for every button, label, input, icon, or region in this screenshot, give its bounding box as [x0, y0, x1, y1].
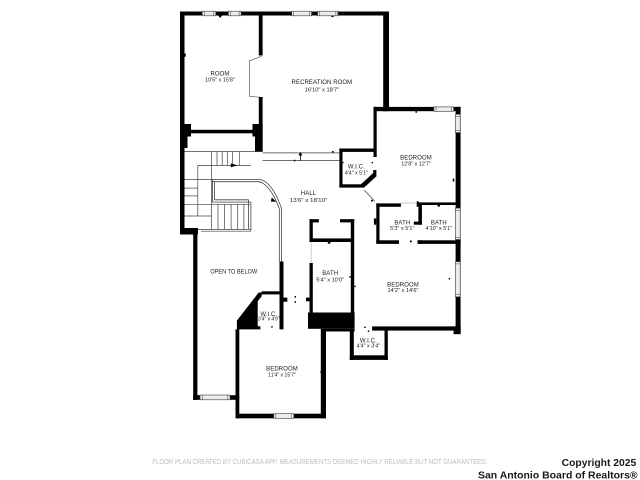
svg-text:OPEN TO BELOW: OPEN TO BELOW [210, 270, 257, 276]
svg-text:16'10" x 18'7": 16'10" x 18'7" [305, 87, 340, 93]
svg-text:4'10" x 5'1": 4'10" x 5'1" [426, 226, 453, 232]
svg-text:10'5" x 15'8": 10'5" x 15'8" [205, 78, 235, 84]
svg-text:13'6" x 18'10": 13'6" x 18'10" [290, 198, 328, 204]
svg-text:5'4" x 10'0": 5'4" x 10'0" [316, 277, 344, 283]
svg-text:12'8" x 12'7": 12'8" x 12'7" [401, 161, 431, 167]
svg-text:San Antonio Board of Realtors®: San Antonio Board of Realtors® [478, 470, 638, 480]
svg-text:RECREATION ROOM: RECREATION ROOM [292, 80, 353, 86]
svg-text:FLOOR PLAN CREATED BY CUBICASA: FLOOR PLAN CREATED BY CUBICASA APP. MEAS… [152, 457, 487, 466]
svg-text:4'4" x 5'1": 4'4" x 5'1" [345, 170, 368, 176]
svg-text:5'3" x 5'1": 5'3" x 5'1" [390, 226, 414, 232]
svg-text:Copyright 2025: Copyright 2025 [562, 458, 637, 469]
svg-text:14'2" x 14'6": 14'2" x 14'6" [388, 288, 419, 294]
svg-text:BATH: BATH [322, 271, 338, 277]
svg-text:4'4" x 3'4": 4'4" x 3'4" [357, 343, 381, 349]
svg-text:11'4" x 15'7": 11'4" x 15'7" [268, 372, 296, 378]
svg-text:ROOM: ROOM [210, 71, 229, 77]
svg-text:HALL: HALL [301, 191, 317, 197]
svg-text:3'4" x 4'9": 3'4" x 4'9" [258, 316, 280, 322]
